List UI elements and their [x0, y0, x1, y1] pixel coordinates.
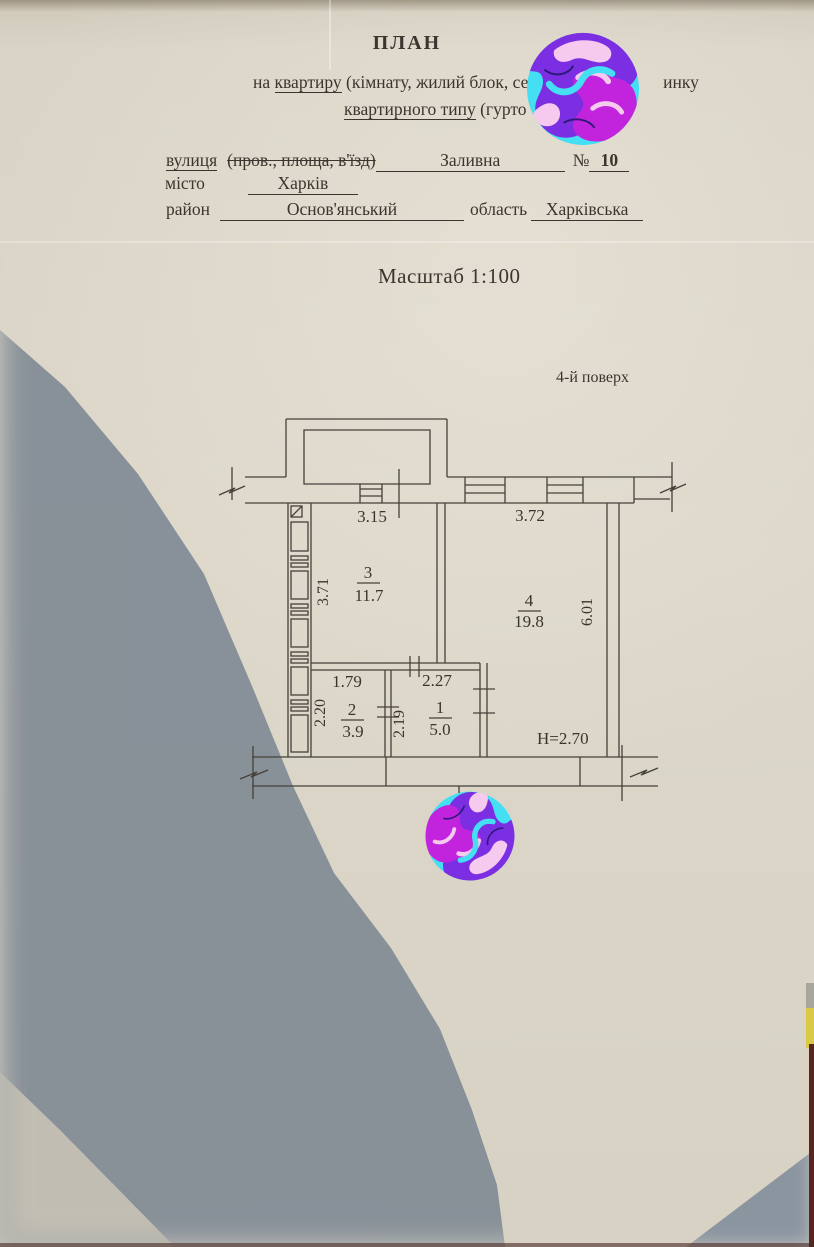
room1-area: 5.0 [429, 720, 450, 739]
floor-plan-walls [219, 419, 686, 812]
dim-top-right: 3.72 [515, 506, 545, 525]
dim-right: 6.01 [579, 598, 596, 626]
photo-edge-yellow [806, 1008, 814, 1048]
photo-edge-gray [806, 983, 814, 1010]
swirl-sticker-bottom-art [424, 790, 516, 882]
room4-number: 4 [525, 591, 534, 610]
dim-room1-depth: 2.19 [391, 710, 408, 738]
room2-number: 2 [348, 700, 357, 719]
room2-area: 3.9 [342, 722, 363, 741]
room4-area: 19.8 [514, 612, 544, 631]
swirl-sticker-top-art [525, 31, 639, 145]
photo-bottom-edge [0, 1243, 814, 1247]
dim-room2-depth: 2.20 [312, 699, 329, 727]
photo-edge-maroon [809, 1044, 814, 1247]
floor-plan-drawing: 3.15 3.72 3.71 6.01 3 11.7 4 19.8 1.79 2… [0, 0, 814, 1247]
swirl-sticker-bottom [424, 790, 516, 882]
ceiling-height-label: Н=2.70 [537, 729, 589, 748]
floor-plan-labels: 3.15 3.72 3.71 6.01 3 11.7 4 19.8 1.79 2… [312, 506, 596, 748]
room3-number: 3 [364, 563, 373, 582]
dim-room2-width: 1.79 [332, 672, 362, 691]
swirl-sticker-top [525, 31, 641, 147]
dim-room1-width: 2.27 [422, 671, 452, 690]
room1-number: 1 [436, 698, 445, 717]
dim-left: 3.71 [315, 578, 332, 606]
dim-top-left: 3.15 [357, 507, 387, 526]
room3-area: 11.7 [354, 586, 384, 605]
scanned-floor-plan-photo: ПЛАН на квартиру (кімнату, жилий блок, с… [0, 0, 814, 1247]
